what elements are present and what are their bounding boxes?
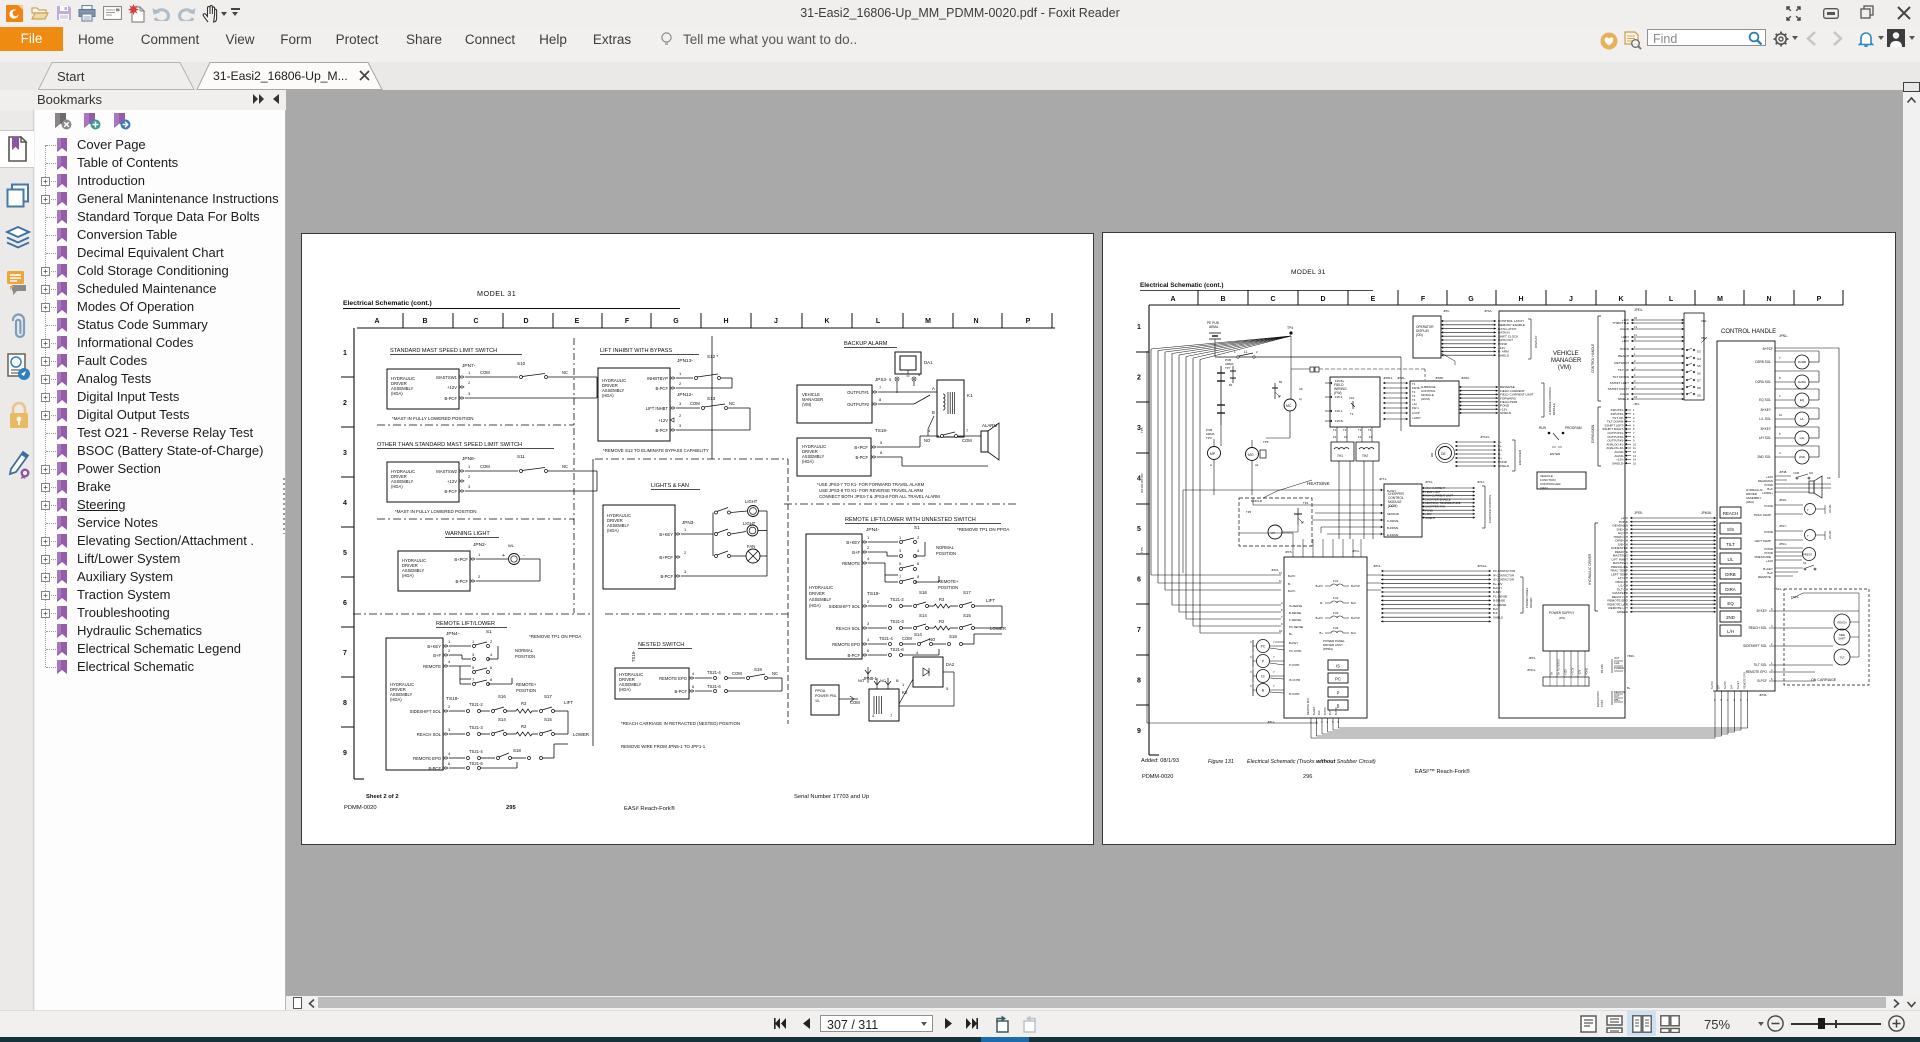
svg-text:B CNTR: B CNTR bbox=[1289, 692, 1299, 696]
svg-text:REMOTE EPO: REMOTE EPO bbox=[413, 756, 442, 761]
svg-text:B1: B1 bbox=[1229, 383, 1233, 387]
svg-text:JPN12-: JPN12- bbox=[677, 392, 693, 398]
svg-text:1: 1 bbox=[902, 682, 905, 687]
svg-text:RR: RR bbox=[1430, 452, 1434, 457]
svg-text:PPDA: PPDA bbox=[815, 689, 826, 693]
svg-text:7: 7 bbox=[966, 428, 969, 433]
svg-text:TILT: TILT bbox=[1839, 656, 1845, 660]
svg-text:+12V: +12V bbox=[1622, 339, 1630, 343]
svg-text:B+PC: B+PC bbox=[1316, 616, 1323, 620]
svg-text:HEATSINK: HEATSINK bbox=[1307, 481, 1331, 486]
svg-text:K: K bbox=[824, 318, 829, 325]
svg-text:B-PCF: B-PCF bbox=[444, 396, 457, 401]
svg-text:*REMOVE TP1 ON PPOA: *REMOVE TP1 ON PPOA bbox=[529, 634, 581, 639]
svg-text:+12V: +12V bbox=[447, 385, 457, 390]
svg-text:B-PCF: B-PCF bbox=[660, 574, 673, 579]
svg-text:S9: S9 bbox=[1697, 393, 1701, 397]
svg-text:(HDA): (HDA) bbox=[391, 484, 403, 489]
svg-text:H: H bbox=[1518, 296, 1523, 303]
svg-text:2: 2 bbox=[1779, 394, 1781, 398]
svg-text:REMOTE: REMOTE bbox=[842, 561, 860, 566]
svg-text:5: 5 bbox=[946, 686, 949, 691]
svg-text:2: 2 bbox=[468, 474, 471, 479]
svg-text:B1: B1 bbox=[1279, 380, 1283, 384]
svg-text:JPS13-: JPS13- bbox=[1480, 435, 1490, 439]
svg-text:A: A bbox=[1210, 463, 1212, 467]
svg-text:PDMM-0020: PDMM-0020 bbox=[1142, 774, 1173, 780]
svg-text:REACH SOL: REACH SOL bbox=[417, 732, 442, 737]
svg-text:SIDESHIFT SOL: SIDESHIFT SOL bbox=[829, 604, 861, 609]
svg-text:GN RD: GN RD bbox=[1828, 531, 1832, 539]
svg-text:JP4J-: JP4J- bbox=[1477, 480, 1485, 484]
svg-text:L/L: L/L bbox=[1727, 557, 1734, 562]
svg-text:REMOTE EPO: REMOTE EPO bbox=[1744, 672, 1747, 689]
svg-text:8: 8 bbox=[1633, 435, 1635, 439]
svg-text:JPS1A-: JPS1A- bbox=[1477, 564, 1487, 568]
svg-text:1: 1 bbox=[867, 535, 870, 540]
svg-text:TP5: TP5 bbox=[1140, 427, 1144, 433]
svg-text:REMOTE EPO: REMOTE EPO bbox=[832, 642, 861, 647]
svg-text:NESTED SWITCH: NESTED SWITCH bbox=[638, 642, 684, 648]
svg-text:POWER: POWER bbox=[1614, 666, 1624, 670]
svg-text:(HDA): (HDA) bbox=[1746, 500, 1754, 504]
svg-text:B+PCF: B+PCF bbox=[1724, 680, 1727, 689]
svg-text:DA1: DA1 bbox=[924, 360, 933, 365]
svg-text:AGND: AGND bbox=[1620, 392, 1630, 396]
svg-text:(PS): (PS) bbox=[1559, 616, 1565, 620]
svg-text:IS: IS bbox=[1336, 664, 1340, 669]
svg-text:10-: 10- bbox=[815, 699, 821, 703]
svg-text:NORMAL: NORMAL bbox=[936, 545, 955, 550]
svg-text:*MAST IN FULLY LOWERED POSITIO: *MAST IN FULLY LOWERED POSITION bbox=[392, 416, 474, 421]
svg-text:B-PCF: B-PCF bbox=[847, 653, 860, 658]
svg-text:COM: COM bbox=[850, 700, 860, 705]
svg-text:SENSOR: SENSOR bbox=[1387, 512, 1399, 516]
svg-text:OUT: OUT bbox=[1614, 656, 1620, 660]
svg-text:4: 4 bbox=[872, 713, 875, 718]
svg-text:PC: PC bbox=[1261, 645, 1266, 649]
svg-text:7: 7 bbox=[472, 677, 475, 682]
svg-text:2: 2 bbox=[343, 400, 347, 407]
svg-text:CONTROL HANDLE: CONTROL HANDLE bbox=[1721, 329, 1776, 335]
svg-text:POSITION: POSITION bbox=[516, 688, 536, 693]
svg-text:HYDRAULIC DRIVER: HYDRAULIC DRIVER bbox=[1588, 553, 1592, 585]
svg-text:2: 2 bbox=[1256, 350, 1258, 354]
svg-text:5: 5 bbox=[1137, 526, 1141, 533]
svg-text:VEHICLE: VEHICLE bbox=[1553, 351, 1579, 357]
svg-text:JPE4-: JPE4- bbox=[1634, 308, 1643, 312]
svg-text:LIGHTS & FAN: LIGHTS & FAN bbox=[651, 483, 689, 489]
svg-text:+12: +12 bbox=[1389, 504, 1394, 508]
svg-text:6: 6 bbox=[490, 665, 493, 670]
svg-text:7: 7 bbox=[1633, 431, 1635, 435]
svg-text:HORN+: HORN+ bbox=[1762, 491, 1773, 495]
svg-text:CHA: CHA bbox=[1614, 661, 1620, 665]
svg-text:B+: B+ bbox=[1551, 671, 1554, 675]
svg-text:JPF5-: JPF5- bbox=[1285, 550, 1293, 554]
svg-text:1: 1 bbox=[1634, 352, 1636, 356]
svg-text:MODEL 31: MODEL 31 bbox=[477, 289, 516, 298]
svg-text:2: 2 bbox=[867, 545, 870, 550]
svg-text:TS21-2: TS21-2 bbox=[890, 597, 904, 602]
svg-text:1: 1 bbox=[1633, 408, 1635, 412]
svg-text:PC CNTR: PC CNTR bbox=[1289, 649, 1301, 653]
svg-text:B+KEY: B+KEY bbox=[1757, 609, 1768, 613]
svg-text:TS21-4: TS21-4 bbox=[707, 670, 721, 675]
svg-text:FW-2: FW-2 bbox=[1335, 395, 1343, 399]
svg-text:WARNING LIGHT: WARNING LIGHT bbox=[445, 531, 490, 537]
svg-text:JPM3-: JPM3- bbox=[1461, 376, 1470, 380]
svg-text:CHOPPER CONTROL: CHOPPER CONTROL bbox=[1488, 494, 1492, 523]
svg-text:1: 1 bbox=[899, 535, 902, 540]
svg-text:1: 1 bbox=[1234, 350, 1236, 354]
svg-text:P CNTR: P CNTR bbox=[1289, 663, 1299, 667]
svg-text:5: 5 bbox=[1779, 432, 1781, 436]
svg-text:3: 3 bbox=[679, 401, 682, 406]
svg-text:REACH: REACH bbox=[1837, 621, 1846, 625]
svg-text:5: 5 bbox=[1721, 699, 1723, 702]
svg-text:B-PCF: B-PCF bbox=[444, 489, 457, 494]
svg-text:2: 2 bbox=[1633, 412, 1635, 416]
svg-text:(PPDA): (PPDA) bbox=[1323, 647, 1333, 651]
svg-text:COM: COM bbox=[902, 636, 912, 641]
svg-text:3: 3 bbox=[343, 450, 347, 457]
svg-text:MASTSW1: MASTSW1 bbox=[436, 375, 457, 380]
svg-text:SHIELD: SHIELD bbox=[1498, 464, 1510, 468]
svg-text:A: A bbox=[932, 386, 935, 391]
svg-text:FU1: FU1 bbox=[1333, 579, 1339, 583]
svg-text:T2: T2 bbox=[1343, 428, 1347, 432]
svg-text:REMOTE LIFT/LOWER WITH UNNESTE: REMOTE LIFT/LOWER WITH UNNESTED SWITCH bbox=[845, 517, 976, 523]
svg-text:N: N bbox=[973, 318, 978, 325]
svg-text:MOD1-B: MOD1-B bbox=[1251, 499, 1262, 503]
svg-text:COM: COM bbox=[732, 671, 742, 676]
svg-text:(HDA): (HDA) bbox=[809, 603, 821, 608]
svg-text:-: - bbox=[523, 553, 525, 559]
svg-text:4: 4 bbox=[917, 548, 920, 553]
svg-text:7: 7 bbox=[890, 713, 893, 718]
svg-text:FU4: FU4 bbox=[1333, 626, 1339, 630]
svg-text:*REMOVE TP1 ON PPOA: *REMOVE TP1 ON PPOA bbox=[957, 527, 1009, 532]
svg-text:J: J bbox=[1569, 296, 1573, 303]
svg-text:(VFC): (VFC) bbox=[1540, 486, 1548, 490]
svg-text:*MAST IN FULLY LOWERED POSITIO: *MAST IN FULLY LOWERED POSITION bbox=[395, 509, 477, 514]
svg-text:POSITION: POSITION bbox=[938, 585, 958, 590]
svg-text:10: 10 bbox=[1633, 442, 1636, 446]
svg-text:T: T bbox=[1807, 508, 1809, 512]
svg-text:(HDA): (HDA) bbox=[391, 391, 403, 396]
svg-text:I-LIMIT: I-LIMIT bbox=[1412, 416, 1421, 420]
svg-text:1: 1 bbox=[1771, 661, 1773, 665]
svg-text:B+F: B+F bbox=[1351, 601, 1356, 605]
svg-text:ENTER: ENTER bbox=[1550, 452, 1561, 456]
svg-text:OUTPUT#2: OUTPUT#2 bbox=[847, 402, 870, 407]
svg-text:B-P: B-P bbox=[1731, 685, 1734, 690]
svg-text:B+PC: B+PC bbox=[1288, 574, 1295, 578]
svg-text:A: A bbox=[1281, 601, 1283, 605]
svg-text:TP5: TP5 bbox=[1140, 547, 1144, 553]
svg-text:NORMAL: NORMAL bbox=[515, 648, 534, 653]
svg-text:D2RB: D2RB bbox=[1798, 360, 1806, 364]
svg-text:Electrical Schematic (cont.): Electrical Schematic (cont.) bbox=[1140, 282, 1223, 289]
svg-text:Y: Y bbox=[1273, 684, 1275, 688]
svg-text:REACH SOL: REACH SOL bbox=[836, 626, 861, 631]
svg-text:S12 *: S12 * bbox=[707, 354, 718, 359]
svg-text:4: 4 bbox=[490, 652, 493, 657]
svg-text:LOWER: LOWER bbox=[573, 732, 589, 737]
svg-text:13: 13 bbox=[1634, 325, 1638, 329]
svg-text:IS-SENSE: IS-SENSE bbox=[1289, 604, 1302, 608]
svg-text:2: 2 bbox=[490, 639, 493, 644]
svg-text:B+PCF: B+PCF bbox=[1351, 616, 1360, 620]
svg-text:11: 11 bbox=[1279, 579, 1282, 583]
svg-text:FW-B+: FW-B+ bbox=[1335, 379, 1345, 383]
svg-text:TS21-: TS21- bbox=[1791, 595, 1799, 599]
svg-text:S1: S1 bbox=[486, 629, 492, 634]
svg-text:SIDESHIFT SOL: SIDESHIFT SOL bbox=[1743, 644, 1767, 648]
svg-text:Electrical Schematic (cont.): Electrical Schematic (cont.) bbox=[343, 300, 432, 307]
svg-text:SHIELD: SHIELD bbox=[1500, 411, 1512, 415]
svg-text:TS19-: TS19- bbox=[875, 428, 888, 433]
svg-text:4: 4 bbox=[1771, 668, 1773, 672]
svg-text:L/L SOL: L/L SOL bbox=[1759, 417, 1771, 421]
svg-text:6: 6 bbox=[692, 684, 695, 689]
svg-text:B-PCF: B-PCF bbox=[1334, 707, 1338, 715]
svg-text:B+F: B+F bbox=[1351, 631, 1356, 635]
svg-text:B+KEY: B+KEY bbox=[846, 540, 860, 545]
svg-text:S6: S6 bbox=[1697, 371, 1701, 375]
svg-text:REMOTE EPO: REMOTE EPO bbox=[1746, 670, 1768, 674]
svg-text:S1: S1 bbox=[914, 525, 920, 530]
svg-text:B9-X39: B9-X39 bbox=[1600, 664, 1604, 673]
svg-text:B+PCF: B+PCF bbox=[854, 445, 868, 450]
svg-text:POWER SUPPLY: POWER SUPPLY bbox=[1549, 611, 1575, 615]
svg-text:B-F: B-F bbox=[1718, 685, 1721, 690]
svg-text:JPT2-: JPT2- bbox=[1425, 480, 1433, 484]
svg-text:+12V: +12V bbox=[1565, 669, 1568, 675]
svg-text:1: 1 bbox=[468, 464, 471, 469]
svg-text:10: 10 bbox=[1779, 413, 1783, 417]
svg-text:+12V: +12V bbox=[658, 418, 668, 423]
svg-text:B+PC: B+PC bbox=[1316, 584, 1323, 588]
svg-text:OUT: OUT bbox=[1614, 694, 1620, 698]
svg-text:TP4: TP4 bbox=[1287, 326, 1293, 330]
svg-text:B+: B+ bbox=[1627, 686, 1631, 690]
svg-text:NC: NC bbox=[772, 671, 778, 676]
svg-text:FU3: FU3 bbox=[1333, 611, 1339, 615]
svg-text:F: F bbox=[625, 318, 630, 325]
svg-text:*USE JPS3-7 TO K1- FOR FORWA: *USE JPS3-7 TO K1- FOR FORWARD TRAVEL AL… bbox=[817, 482, 925, 487]
svg-text:IS: IS bbox=[1261, 675, 1265, 679]
svg-text:REMOVE WIRE FROM JPN5-1 TO JPF: REMOVE WIRE FROM JPN5-1 TO JPF1-1 bbox=[621, 744, 706, 749]
svg-text:6: 6 bbox=[343, 600, 347, 607]
svg-text:B-: B- bbox=[1288, 582, 1291, 586]
svg-text:4: 4 bbox=[928, 428, 931, 433]
svg-text:BACKUP ALARM: BACKUP ALARM bbox=[844, 341, 888, 347]
svg-text:1: 1 bbox=[472, 639, 475, 644]
svg-text:L1: L1 bbox=[1244, 350, 1248, 354]
svg-text:N: N bbox=[1766, 296, 1771, 303]
svg-text:9: 9 bbox=[1633, 439, 1635, 443]
svg-text:TS21-2: TS21-2 bbox=[469, 702, 483, 707]
svg-text:H: H bbox=[723, 318, 728, 325]
svg-text:3: 3 bbox=[448, 727, 451, 732]
svg-text:4: 4 bbox=[916, 650, 919, 655]
svg-text:DIAGNOSTIC: DIAGNOSTIC bbox=[1596, 691, 1600, 707]
svg-text:(HDA): (HDA) bbox=[607, 528, 619, 533]
svg-text:2ND SOL: 2ND SOL bbox=[1757, 455, 1771, 459]
svg-text:8: 8 bbox=[917, 574, 920, 579]
svg-text:T3: T3 bbox=[1350, 412, 1354, 416]
svg-text:TS19-: TS19- bbox=[867, 591, 880, 597]
svg-text:B+KEY: B+KEY bbox=[1387, 489, 1396, 493]
svg-text:SHIELD: SHIELD bbox=[1618, 397, 1630, 401]
svg-text:2: 2 bbox=[1634, 366, 1636, 370]
svg-text:(VM): (VM) bbox=[1558, 365, 1571, 371]
svg-text:REMOTE: REMOTE bbox=[1758, 575, 1771, 579]
svg-text:1: 1 bbox=[478, 552, 481, 557]
svg-text:ENCODER: ENCODER bbox=[1518, 449, 1522, 465]
svg-text:C-DRIVE: C-DRIVE bbox=[1387, 519, 1399, 523]
svg-text:7: 7 bbox=[1137, 627, 1141, 634]
svg-text:(HDA): (HDA) bbox=[402, 573, 414, 578]
svg-text:2: 2 bbox=[1634, 385, 1636, 389]
svg-text:REMOTE EPO: REMOTE EPO bbox=[659, 676, 688, 681]
svg-text:B+KEY: B+KEY bbox=[1737, 681, 1740, 689]
svg-text:B-PCF: B-PCF bbox=[1757, 679, 1767, 683]
svg-text:OTHER THAN STANDARD MAST SPEED: OTHER THAN STANDARD MAST SPEED LIMIT SWI… bbox=[377, 442, 522, 448]
svg-text:FU2: FU2 bbox=[1333, 596, 1339, 600]
svg-text:485+: 485+ bbox=[1614, 698, 1620, 702]
svg-text:CONNECT BOTH JPS3-7 & JPS3-8 F: CONNECT BOTH JPS3-7 & JPS3-8 FOR ALL TRA… bbox=[819, 494, 940, 499]
svg-text:(HDA): (HDA) bbox=[390, 697, 402, 702]
svg-text:B+PCF: B+PCF bbox=[1763, 347, 1773, 351]
svg-text:B: B bbox=[1262, 689, 1265, 693]
svg-text:14: 14 bbox=[1633, 458, 1636, 462]
svg-text:16: 16 bbox=[1634, 395, 1638, 399]
svg-text:REMOTE+: REMOTE+ bbox=[938, 579, 959, 584]
svg-text:(HDA): (HDA) bbox=[602, 393, 614, 398]
svg-text:FAN: FAN bbox=[747, 544, 755, 549]
svg-text:1R: 1R bbox=[1279, 629, 1282, 633]
svg-text:TS21-3: TS21-3 bbox=[890, 619, 904, 624]
svg-text:1: 1 bbox=[684, 527, 687, 532]
svg-text:LIGHT: LIGHT bbox=[743, 521, 756, 526]
svg-text:1: 1 bbox=[343, 350, 347, 357]
svg-text:7: 7 bbox=[1281, 615, 1283, 619]
svg-text:3: 3 bbox=[1771, 624, 1773, 628]
svg-text:REMOTE: REMOTE bbox=[423, 664, 441, 669]
svg-text:JPD-: JPD- bbox=[1443, 309, 1450, 313]
svg-text:FW-B-: FW-B- bbox=[1335, 419, 1344, 423]
svg-text:8: 8 bbox=[1137, 678, 1141, 685]
svg-text:2: 2 bbox=[1137, 375, 1141, 382]
svg-text:8: 8 bbox=[1281, 608, 1283, 612]
svg-text:EASi²™ Reach-Fork®: EASi²™ Reach-Fork® bbox=[1415, 768, 1471, 775]
svg-text:S16: S16 bbox=[498, 694, 506, 699]
svg-text:JPN4-: JPN4- bbox=[866, 527, 880, 533]
svg-text:B-PCF: B-PCF bbox=[674, 689, 687, 694]
svg-text:A6: A6 bbox=[1299, 387, 1303, 391]
svg-text:DRIVER: DRIVER bbox=[1529, 597, 1533, 608]
svg-text:TILT: TILT bbox=[1726, 542, 1735, 547]
svg-text:TH2: TH2 bbox=[1362, 454, 1368, 458]
svg-text:3: 3 bbox=[472, 652, 475, 657]
svg-text:B-PCF: B-PCF bbox=[655, 428, 668, 433]
svg-text:(VM): (VM) bbox=[802, 402, 812, 407]
svg-text:8: 8 bbox=[879, 397, 882, 402]
svg-text:(HDA): (HDA) bbox=[619, 687, 631, 692]
svg-text:S5: S5 bbox=[1697, 364, 1701, 368]
svg-text:5: 5 bbox=[1633, 423, 1635, 427]
svg-text:6: 6 bbox=[448, 761, 451, 766]
svg-text:THROTTLE: THROTTLE bbox=[1613, 321, 1629, 325]
svg-text:REACH: REACH bbox=[1723, 511, 1738, 516]
svg-text:9: 9 bbox=[1634, 337, 1636, 341]
svg-text:B-PCF: B-PCF bbox=[855, 455, 868, 460]
svg-text:8: 8 bbox=[1779, 376, 1781, 380]
svg-text:EQ: EQ bbox=[1727, 601, 1734, 606]
svg-text:LIFT: LIFT bbox=[564, 700, 573, 705]
svg-text:RUN: RUN bbox=[1539, 426, 1547, 430]
svg-text:POSITION: POSITION bbox=[936, 551, 956, 556]
svg-text:X: X bbox=[1250, 640, 1252, 644]
svg-text:COM: COM bbox=[1793, 471, 1799, 475]
svg-text:11: 11 bbox=[1633, 446, 1636, 450]
svg-text:(OD): (OD) bbox=[1416, 333, 1423, 337]
svg-text:2: 2 bbox=[679, 413, 682, 418]
svg-text:MC: MC bbox=[1286, 404, 1292, 408]
svg-text:B-PCF: B-PCF bbox=[1323, 707, 1327, 715]
svg-text:Sheet 2 of 2: Sheet 2 of 2 bbox=[366, 794, 399, 800]
svg-text:D: D bbox=[1320, 296, 1325, 303]
svg-text:S19: S19 bbox=[754, 667, 762, 672]
svg-text:DIRA: DIRA bbox=[1725, 587, 1736, 592]
svg-text:LOWER: LOWER bbox=[990, 626, 1006, 631]
svg-text:4: 4 bbox=[1633, 420, 1635, 424]
svg-text:MODULE: MODULE bbox=[1552, 403, 1556, 415]
svg-text:REACH: REACH bbox=[1618, 354, 1629, 358]
svg-text:T3: T3 bbox=[1358, 428, 1362, 432]
svg-text:TP3: TP3 bbox=[1206, 436, 1212, 440]
svg-text:(HCM): (HCM) bbox=[1421, 397, 1430, 401]
svg-text:VB1: VB1 bbox=[1701, 319, 1707, 323]
svg-text:NO: NO bbox=[929, 637, 936, 642]
svg-text:B+PCF: B+PCF bbox=[454, 557, 468, 562]
svg-text:2ND: 2ND bbox=[1726, 615, 1735, 620]
svg-text:JPN2-: JPN2- bbox=[473, 542, 487, 548]
svg-text:EXPANSION: EXPANSION bbox=[1591, 424, 1595, 443]
svg-text:FW-1: FW-1 bbox=[1412, 406, 1419, 410]
svg-text:S14: S14 bbox=[498, 717, 506, 722]
svg-text:1: 1 bbox=[1634, 373, 1636, 377]
svg-text:S14: S14 bbox=[914, 632, 922, 637]
svg-text:PRESS: PRESS bbox=[1803, 553, 1812, 557]
svg-text:2: 2 bbox=[867, 599, 870, 604]
svg-text:2: 2 bbox=[679, 381, 682, 386]
svg-text:B-SENSE: B-SENSE bbox=[1289, 611, 1301, 615]
svg-text:REACH SOL: REACH SOL bbox=[1749, 626, 1768, 630]
svg-text:SHIELD-: SHIELD- bbox=[1612, 461, 1624, 465]
svg-text:EQ SOL: EQ SOL bbox=[1759, 398, 1771, 402]
svg-text:1: 1 bbox=[679, 371, 682, 376]
svg-text:JPF6-: JPF6- bbox=[1271, 568, 1279, 572]
svg-text:X: X bbox=[1250, 655, 1252, 659]
svg-text:L/H: L/H bbox=[1727, 629, 1734, 634]
svg-text:K1: K1 bbox=[967, 393, 973, 398]
svg-text:A: A bbox=[1170, 296, 1175, 303]
svg-text:JPM1-: JPM1- bbox=[1397, 376, 1406, 380]
